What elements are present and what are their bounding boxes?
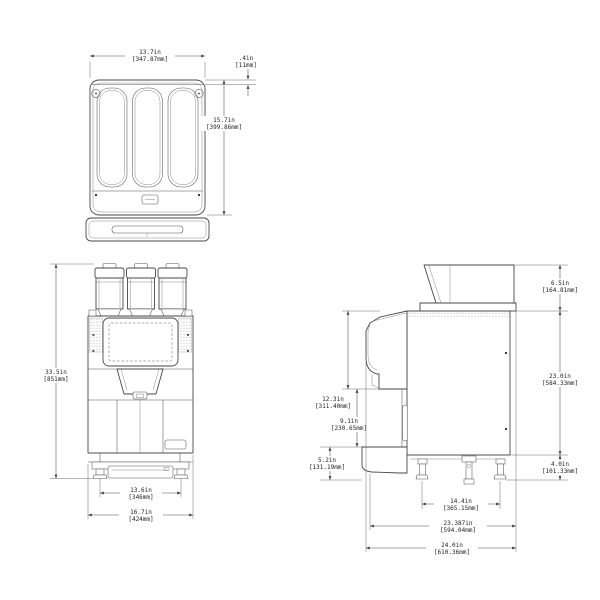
- dim-top-depth-in: 15.7in: [213, 117, 235, 124]
- front-view-base: [88, 453, 193, 479]
- dim-top-width: 13.7in [347.87mm]: [90, 48, 205, 78]
- dim-side-clearance-mm: [230.65mm]: [331, 425, 367, 432]
- dim-top-offset-mm: [11mm]: [235, 62, 257, 69]
- side-view-cabinet: [407, 311, 510, 455]
- dim-side-door-height-in: 12.3in: [322, 396, 344, 403]
- top-view: [86, 80, 209, 241]
- dim-side-base-height: 5.2in [131.19mm]: [305, 447, 362, 480]
- dim-side-leg-span-mm: [365.15mm]: [443, 505, 479, 512]
- front-view-nozzle: [133, 392, 147, 399]
- dim-side-body-height-mm: [584.33mm]: [542, 380, 578, 387]
- dim-front-height-mm: [851mm]: [43, 376, 68, 383]
- side-view-hopper: [420, 265, 516, 311]
- dim-side-depth-overall-mm: [610.36mm]: [434, 549, 470, 556]
- front-view-right-leg: [177, 469, 185, 475]
- side-view-drain-valve: [462, 456, 476, 484]
- front-view-hoppers: [95, 264, 187, 317]
- dim-front-leg-span-in: 13.6in: [130, 487, 152, 494]
- dim-top-offset-in: .4in: [239, 55, 254, 62]
- front-view-hopper-3: [158, 264, 187, 317]
- dim-top-depth: 15.7in [399.86mm]: [200, 80, 248, 215]
- dim-side-leg-span-in: 14.4in: [450, 498, 472, 505]
- dim-front-height-in: 33.5in: [45, 369, 67, 376]
- dim-front-width-mm: [424mm]: [128, 516, 153, 523]
- dim-side-door-height-mm: [311.40mm]: [315, 403, 351, 410]
- top-view-right-pivot-dot: [198, 93, 200, 95]
- side-view-door: [366, 311, 407, 389]
- dim-side-clearance-in: 9.1in: [340, 418, 358, 425]
- dim-side-base-height-mm: [131.19mm]: [309, 464, 345, 471]
- dim-side-depth-overall-in: 24.0in: [441, 542, 463, 549]
- dim-top-width-mm: [347.87mm]: [132, 56, 168, 63]
- dim-front-height: 33.5in [851mm]: [37, 264, 94, 479]
- front-view-hopper-2: [127, 264, 156, 317]
- dim-side-leg-height-in: 4.0in: [551, 461, 569, 468]
- dim-top-offset: .4in [11mm]: [205, 54, 263, 96]
- side-view-handle-slot: [403, 405, 408, 441]
- front-view-left-leg: [96, 469, 104, 475]
- front-view: [88, 264, 193, 479]
- dim-side-depth-body-mm: [594.04mm]: [440, 527, 476, 534]
- front-view-dispense-hood: [117, 369, 163, 394]
- side-view: [362, 265, 516, 484]
- dim-side-body-height: 23.0in [584.33mm]: [510, 311, 583, 455]
- dim-side-hopper-height-mm: [164.81mm]: [542, 287, 578, 294]
- dim-top-width-in: 13.7in: [139, 49, 161, 56]
- dim-side-hopper-height: 6.5in [164.81mm]: [510, 265, 583, 311]
- dim-front-leg-span: 13.6in [346mm]: [100, 479, 181, 501]
- dim-front-width-in: 16.7in: [130, 509, 152, 516]
- dim-top-depth-mm: [399.86mm]: [206, 124, 242, 131]
- dim-side-leg-height-mm: [101.33mm]: [542, 468, 578, 475]
- side-view-top-band: [408, 312, 510, 318]
- front-view-right-vent: [179, 318, 192, 352]
- dim-side-base-height-in: 5.2in: [318, 457, 336, 464]
- dim-front-leg-span-mm: [346mm]: [128, 494, 153, 501]
- front-view-display-door: [103, 318, 178, 366]
- top-view-drip-tray: [86, 218, 209, 241]
- top-view-left-pivot-dot: [95, 93, 97, 95]
- front-view-hopper-1: [95, 264, 124, 317]
- dim-side-body-height-in: 23.0in: [549, 373, 571, 380]
- side-view-hopper-flange: [420, 303, 516, 311]
- dim-side-leg-span: 14.4in [365.15mm]: [422, 481, 500, 512]
- dimension-drawing: 13.7in [347.87mm] .4in [11mm] 15.7in [39…: [0, 0, 600, 600]
- drawing-canvas: 13.7in [347.87mm] .4in [11mm] 15.7in [39…: [0, 0, 600, 600]
- front-view-left-vent: [90, 318, 103, 352]
- side-view-front-leg: [418, 459, 427, 464]
- side-view-rear-leg: [496, 459, 505, 464]
- dim-side-depth-body-in: 23.387in: [444, 520, 473, 527]
- dim-side-hopper-height-in: 6.5in: [551, 280, 569, 287]
- dim-side-leg-height: 4.0in [101.33mm]: [506, 455, 583, 480]
